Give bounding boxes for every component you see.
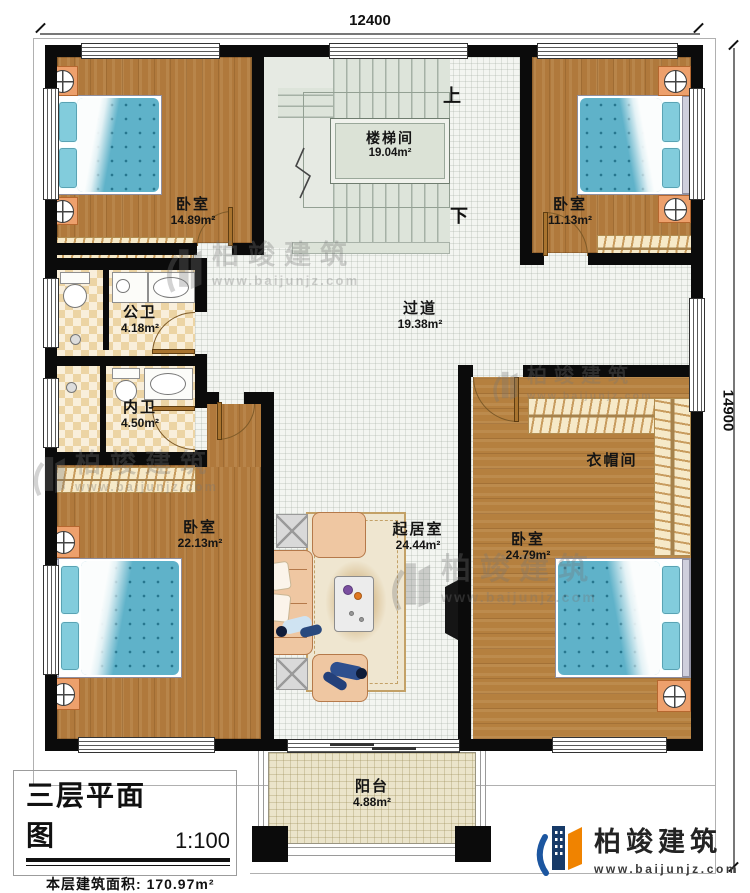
door-leaf bbox=[152, 349, 195, 354]
floor-area-value: 170.97m² bbox=[147, 876, 215, 892]
dimension-tick bbox=[693, 23, 704, 34]
headboard bbox=[682, 559, 690, 677]
flower-decor bbox=[354, 592, 362, 600]
title-underline-thick bbox=[26, 858, 230, 862]
pillow bbox=[58, 101, 78, 143]
pillow bbox=[58, 147, 78, 189]
room-label-corridor: 过道19.38m² bbox=[375, 300, 465, 332]
door-leaf bbox=[514, 377, 519, 422]
nightstand bbox=[658, 195, 691, 223]
title-block: 三层平面图 1:100 本层建筑面积: 170.97m² 层高: 3.3m bbox=[26, 774, 230, 893]
mattress bbox=[558, 561, 660, 675]
floor-drain-icon bbox=[70, 334, 81, 345]
window bbox=[43, 565, 59, 675]
window bbox=[689, 88, 705, 200]
sofa-cushion-seam bbox=[270, 637, 307, 638]
room-label-public-bathroom: 公卫4.18m² bbox=[95, 304, 185, 336]
plan-scale: 1:100 bbox=[175, 828, 230, 854]
bed bbox=[555, 558, 691, 678]
lamp-icon bbox=[664, 198, 687, 221]
stair-up-label: 上 bbox=[443, 82, 461, 108]
dimension-tick bbox=[35, 23, 46, 34]
pillow bbox=[661, 621, 681, 671]
cloakroom-wardrobe bbox=[654, 398, 691, 556]
side-table bbox=[276, 514, 308, 548]
top-dimension-label: 12400 bbox=[320, 12, 420, 29]
mattress bbox=[81, 561, 179, 675]
room-label-stairwell: 楼梯间 19.04m² bbox=[332, 130, 448, 160]
wall bbox=[261, 392, 274, 751]
mattress bbox=[77, 98, 159, 192]
room-label-bedroom-bottom-right: 卧室24.79m² bbox=[478, 531, 578, 563]
lamp-icon bbox=[663, 685, 686, 708]
bed bbox=[48, 95, 162, 195]
window bbox=[329, 43, 468, 59]
nightstand bbox=[657, 680, 691, 712]
window bbox=[43, 88, 59, 200]
room-label-cloakroom: 衣帽间 bbox=[562, 452, 662, 469]
room-label-bedroom-top-left: 卧室14.89m² bbox=[143, 196, 243, 228]
pillow bbox=[60, 621, 80, 671]
mattress bbox=[580, 98, 662, 192]
window bbox=[43, 278, 59, 348]
bed bbox=[577, 95, 691, 195]
wall bbox=[252, 45, 264, 255]
title-underline-thin bbox=[26, 865, 230, 866]
wall bbox=[588, 253, 703, 265]
wall bbox=[45, 452, 207, 465]
door-leaf bbox=[217, 402, 222, 440]
pillow bbox=[60, 565, 80, 615]
bed-sheet-fold bbox=[580, 98, 662, 192]
pillow bbox=[661, 147, 681, 189]
window bbox=[552, 737, 667, 753]
shower-head-icon bbox=[116, 279, 130, 293]
wall bbox=[45, 356, 207, 366]
right-dimension-label: 14900 bbox=[720, 381, 737, 441]
pillow bbox=[661, 101, 681, 143]
wardrobe bbox=[48, 467, 196, 493]
flower-decor bbox=[343, 585, 353, 595]
room-label-living-room: 起居室24.44m² bbox=[368, 521, 468, 553]
room-label-private-bathroom: 内卫4.50m² bbox=[95, 399, 185, 431]
bed bbox=[50, 558, 182, 678]
sliding-door-leaf bbox=[330, 743, 374, 746]
window bbox=[689, 298, 705, 412]
sliding-door-leaf bbox=[372, 747, 416, 750]
side-table bbox=[276, 658, 308, 690]
toilet-tank bbox=[60, 272, 90, 284]
room-label-bedroom-top-right: 卧室11.13m² bbox=[520, 196, 620, 228]
wall bbox=[45, 243, 197, 255]
window bbox=[81, 43, 220, 59]
window bbox=[537, 43, 678, 59]
balcony-column bbox=[455, 826, 491, 862]
floor-drain-icon bbox=[66, 382, 77, 393]
window bbox=[43, 378, 59, 448]
balcony-column bbox=[252, 826, 288, 862]
wall bbox=[520, 253, 544, 265]
room-label-bedroom-bottom-left: 卧室22.13m² bbox=[150, 519, 250, 551]
nightstand bbox=[658, 66, 691, 96]
toilet-tank bbox=[112, 368, 140, 379]
wall bbox=[520, 45, 532, 265]
person-head bbox=[276, 626, 287, 637]
top-dimension-line bbox=[40, 33, 700, 35]
room-label-balcony: 阳台4.88m² bbox=[322, 778, 422, 810]
table-decor bbox=[349, 611, 354, 616]
right-dimension-line bbox=[733, 48, 735, 873]
brand-url: www.baijunjz.com bbox=[594, 862, 739, 876]
floor-area-label: 本层建筑面积: bbox=[46, 876, 142, 892]
wall bbox=[45, 258, 207, 270]
person-head bbox=[356, 668, 367, 679]
brand-logo: 柏竣建筑 www.baijunjz.com bbox=[536, 820, 739, 876]
armchair bbox=[312, 512, 366, 558]
sink-icon bbox=[150, 373, 186, 395]
brand-name: 柏竣建筑 bbox=[594, 820, 739, 859]
wall bbox=[232, 243, 264, 255]
stair-bottom-step bbox=[292, 242, 450, 254]
floor-plan-canvas: 12400 14900 楼梯间 19.04m² 上 下 bbox=[0, 0, 750, 893]
table-decor bbox=[359, 617, 364, 622]
wall bbox=[458, 365, 473, 377]
window bbox=[78, 737, 215, 753]
bed-sheet-fold bbox=[77, 98, 159, 192]
stair-down-label: 下 bbox=[450, 202, 468, 228]
wall bbox=[458, 365, 471, 751]
sink-icon bbox=[153, 277, 189, 298]
wall bbox=[523, 365, 703, 377]
brand-building-icon bbox=[536, 820, 586, 876]
plan-title: 三层平面图 bbox=[26, 774, 165, 854]
coffee-table bbox=[334, 576, 374, 632]
bed-sheet-fold bbox=[558, 561, 660, 675]
cloakroom-wardrobe bbox=[528, 398, 658, 434]
toilet-icon bbox=[63, 284, 87, 308]
bed-sheet-fold bbox=[81, 561, 179, 675]
sliding-door bbox=[287, 739, 460, 753]
lamp-icon bbox=[664, 70, 687, 93]
stair-break-line bbox=[290, 146, 316, 202]
pillow bbox=[661, 565, 681, 615]
